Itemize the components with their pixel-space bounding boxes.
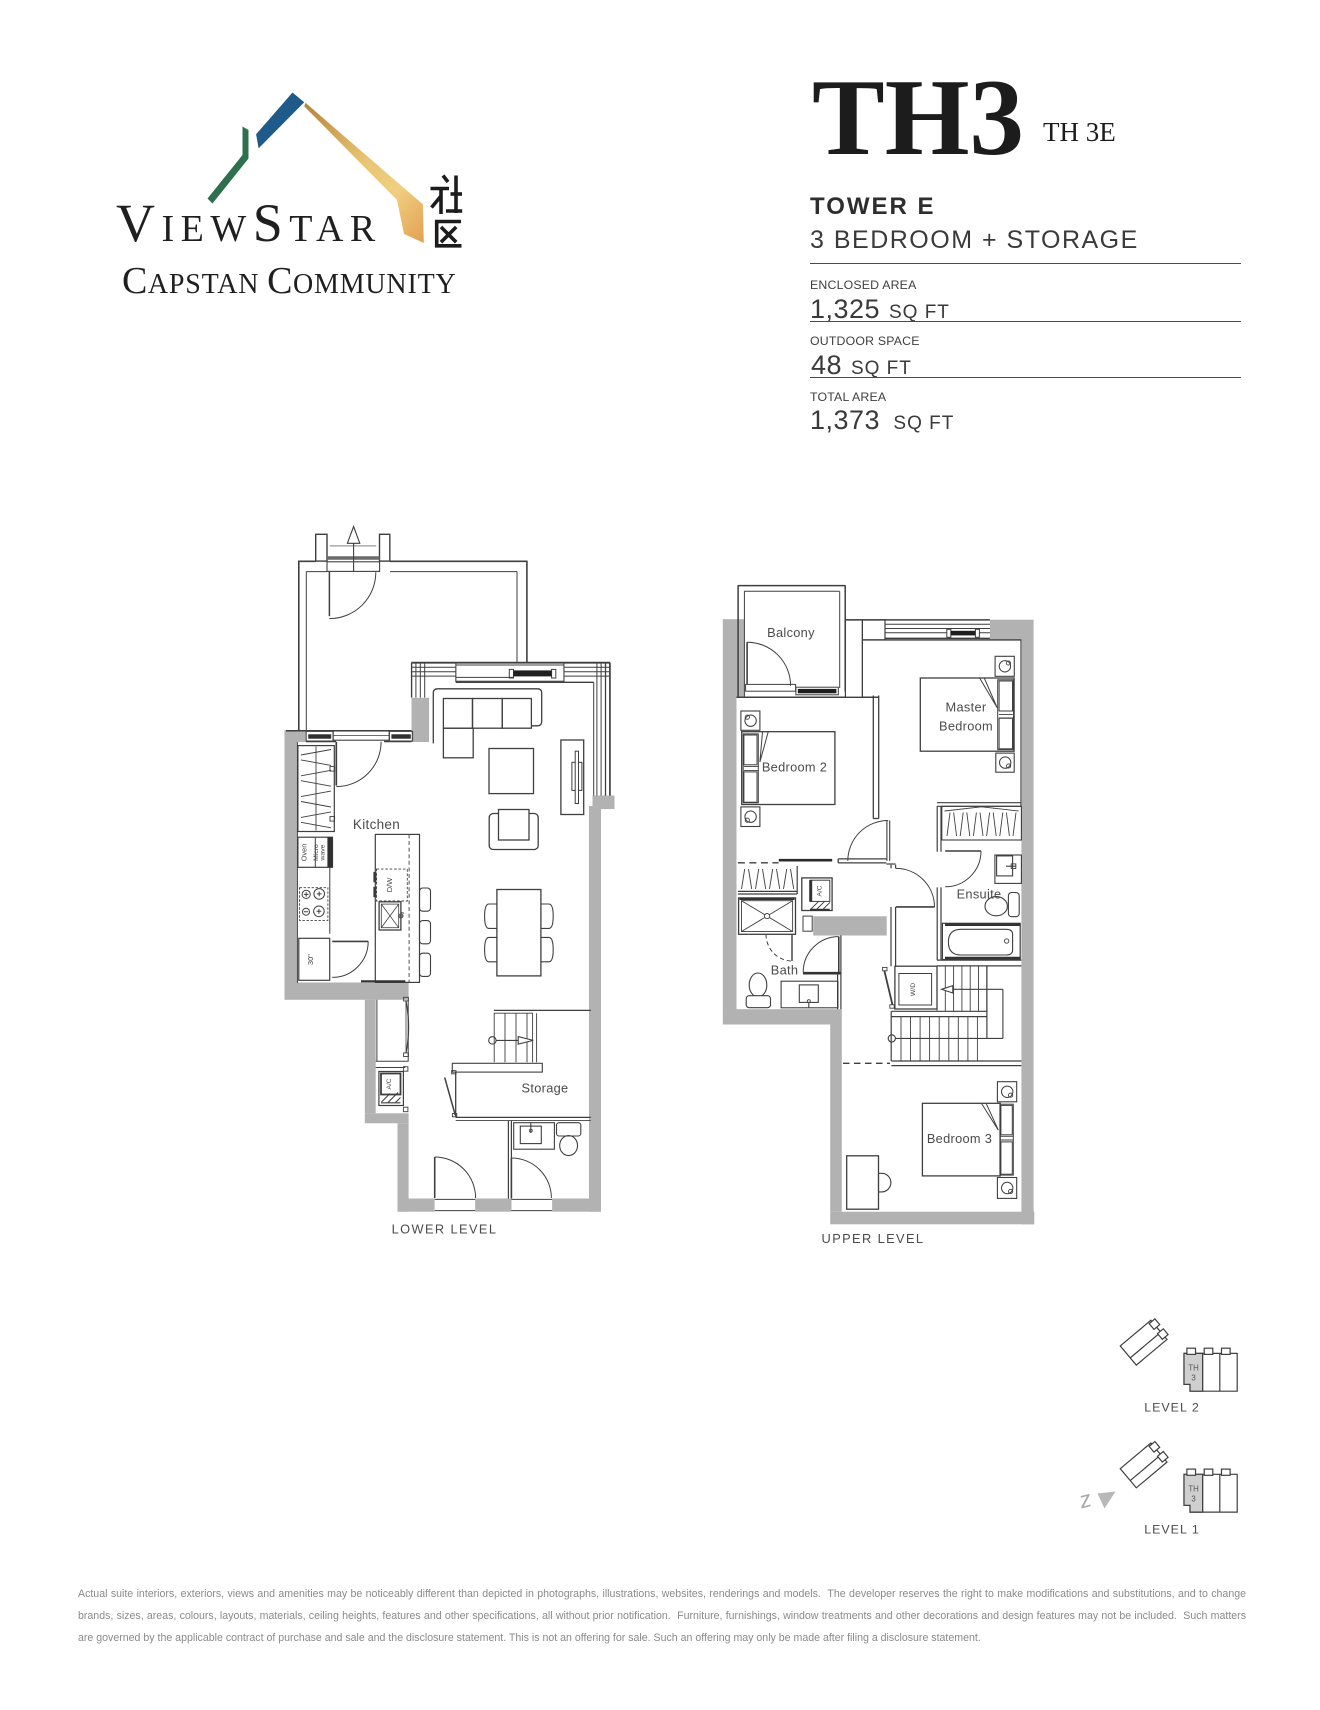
svg-text:D/W: D/W [385, 877, 394, 893]
svg-text:LEVEL 1: LEVEL 1 [1144, 1523, 1199, 1537]
svg-text:LEVEL 2: LEVEL 2 [1144, 1401, 1199, 1415]
svg-text:TH: TH [1188, 1484, 1198, 1493]
svg-text:TH: TH [1188, 1363, 1198, 1372]
svg-text:UPPER LEVEL: UPPER LEVEL [822, 1231, 925, 1246]
svg-text:Kitchen: Kitchen [353, 817, 400, 832]
svg-text:Balcony: Balcony [767, 625, 815, 640]
svg-text:LOWER LEVEL: LOWER LEVEL [392, 1222, 498, 1237]
svg-text:Bedroom 2: Bedroom 2 [762, 760, 827, 775]
svg-text:z: z [1075, 1485, 1094, 1513]
svg-text:Bedroom 3: Bedroom 3 [927, 1131, 992, 1146]
svg-text:Master: Master [946, 700, 987, 715]
svg-text:W/D: W/D [910, 983, 917, 996]
svg-text:3: 3 [1191, 1373, 1195, 1382]
svg-text:wave: wave [320, 844, 327, 861]
svg-text:3: 3 [1191, 1494, 1195, 1503]
svg-text:Storage: Storage [522, 1081, 569, 1096]
svg-text:A/C: A/C [386, 1078, 393, 1089]
svg-text:Ensuite: Ensuite [957, 887, 1002, 902]
svg-text:Bath: Bath [771, 963, 799, 978]
svg-text:30": 30" [306, 954, 315, 965]
svg-text:Oven: Oven [300, 844, 309, 862]
svg-text:Bedroom: Bedroom [939, 719, 993, 734]
svg-text:A/C: A/C [817, 885, 824, 896]
